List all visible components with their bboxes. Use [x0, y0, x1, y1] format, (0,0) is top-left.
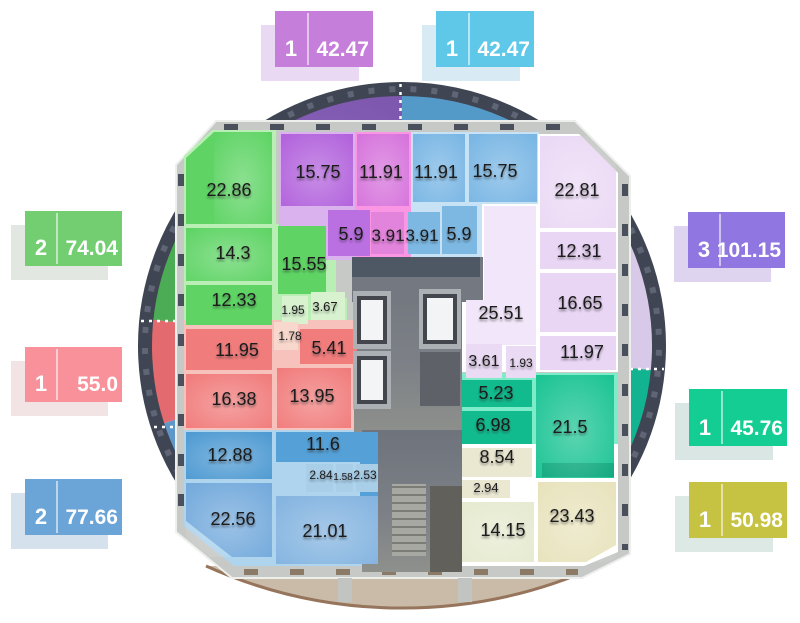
svg-text:15.55: 15.55 [281, 254, 326, 274]
svg-text:8.54: 8.54 [479, 447, 514, 467]
svg-text:45.76: 45.76 [730, 417, 783, 440]
svg-text:1: 1 [285, 36, 297, 61]
svg-text:12.33: 12.33 [211, 290, 256, 310]
svg-text:50.98: 50.98 [730, 509, 783, 532]
svg-text:3: 3 [698, 237, 710, 262]
svg-text:5.41: 5.41 [311, 338, 346, 358]
svg-text:1: 1 [699, 507, 711, 532]
svg-text:1.93: 1.93 [509, 356, 533, 370]
svg-text:3.91: 3.91 [405, 226, 438, 245]
svg-text:14.15: 14.15 [480, 520, 525, 540]
svg-text:3.61: 3.61 [468, 353, 499, 370]
svg-text:42.47: 42.47 [316, 38, 369, 61]
svg-text:21.01: 21.01 [302, 521, 347, 541]
svg-text:11.91: 11.91 [359, 162, 403, 182]
svg-text:5.9: 5.9 [338, 224, 363, 244]
svg-text:16.38: 16.38 [211, 389, 256, 409]
svg-text:3.67: 3.67 [312, 299, 337, 314]
svg-text:1.58: 1.58 [333, 472, 353, 483]
svg-text:13.95: 13.95 [289, 386, 334, 406]
svg-text:12.88: 12.88 [207, 445, 252, 465]
svg-text:11.91: 11.91 [414, 162, 458, 182]
svg-text:12.31: 12.31 [556, 241, 601, 261]
svg-text:42.47: 42.47 [477, 38, 530, 61]
svg-text:1.78: 1.78 [278, 329, 302, 343]
svg-text:22.81: 22.81 [554, 180, 599, 200]
svg-text:1: 1 [446, 36, 458, 61]
svg-text:101.15: 101.15 [717, 239, 782, 262]
svg-text:1: 1 [699, 415, 711, 440]
svg-text:77.66: 77.66 [65, 506, 118, 529]
svg-text:15.75: 15.75 [472, 161, 517, 181]
svg-text:25.51: 25.51 [478, 303, 523, 323]
svg-text:11.95: 11.95 [215, 340, 259, 360]
svg-text:16.65: 16.65 [557, 293, 602, 313]
svg-text:74.04: 74.04 [65, 237, 118, 260]
svg-text:3.91: 3.91 [371, 226, 404, 245]
svg-text:21.5: 21.5 [552, 417, 587, 437]
svg-text:55.0: 55.0 [77, 373, 118, 396]
svg-text:1: 1 [35, 371, 47, 396]
svg-text:22.86: 22.86 [206, 180, 251, 200]
svg-text:11.6: 11.6 [306, 434, 340, 454]
svg-text:1.95: 1.95 [281, 303, 305, 317]
svg-text:2: 2 [35, 504, 47, 529]
svg-text:2.94: 2.94 [473, 480, 498, 495]
svg-text:23.43: 23.43 [549, 506, 594, 526]
svg-text:2.53: 2.53 [353, 468, 377, 482]
svg-text:15.75: 15.75 [295, 162, 340, 182]
svg-text:14.3: 14.3 [215, 243, 250, 263]
svg-text:5.9: 5.9 [446, 224, 471, 244]
svg-text:2: 2 [35, 235, 47, 260]
svg-text:5.23: 5.23 [478, 383, 513, 403]
svg-text:22.56: 22.56 [210, 509, 255, 529]
svg-text:6.98: 6.98 [475, 415, 510, 435]
svg-text:2.84: 2.84 [309, 468, 333, 482]
svg-text:11.97: 11.97 [560, 342, 604, 362]
